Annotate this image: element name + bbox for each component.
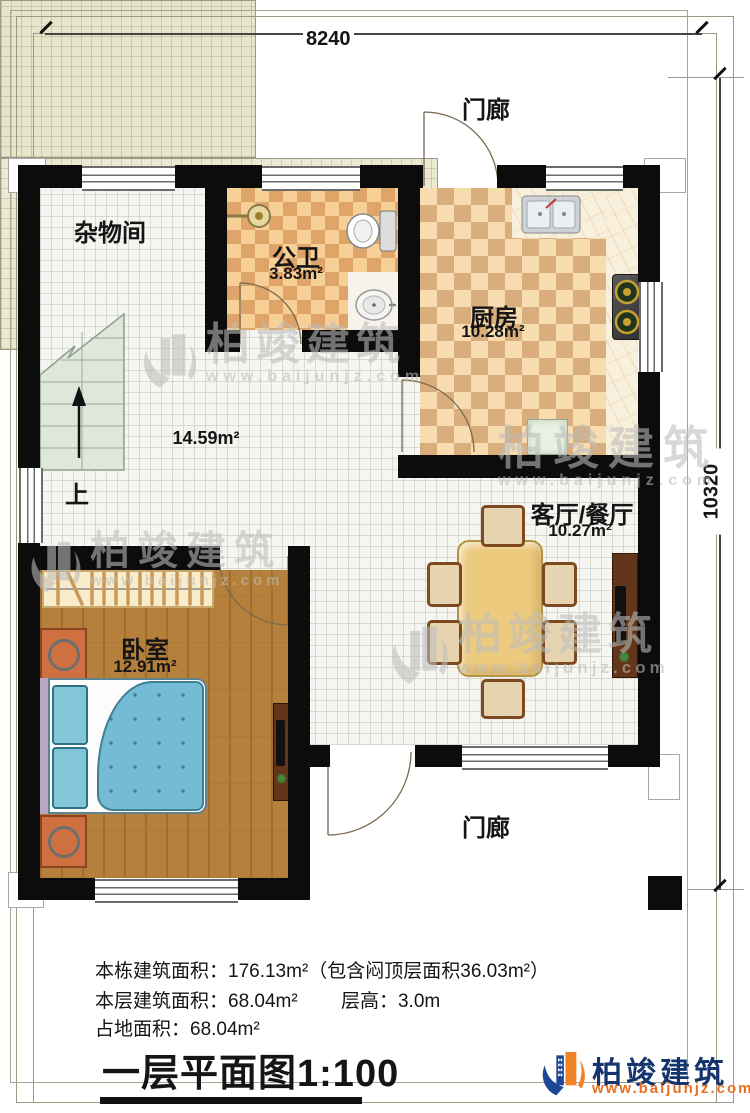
bathroom-sink-counter bbox=[348, 272, 398, 330]
wall bbox=[497, 165, 546, 188]
wall bbox=[302, 330, 398, 352]
pillow bbox=[52, 685, 88, 745]
stairs-direction-label: 上 bbox=[65, 475, 89, 510]
plan-title-text: 一层平面图 bbox=[102, 1053, 297, 1095]
title-underline bbox=[100, 1097, 362, 1104]
window bbox=[639, 282, 663, 372]
area-label-living: 10.27m² bbox=[548, 521, 611, 541]
wall bbox=[310, 745, 330, 767]
bed bbox=[39, 678, 207, 814]
wall bbox=[360, 165, 423, 188]
room-label-porch-bottom: 门廊 bbox=[462, 808, 510, 843]
footer-floor-area: 本层建筑面积：68.04m² 层高：3.0m bbox=[95, 986, 440, 1013]
wall bbox=[398, 455, 660, 478]
room-label-storage: 杂物间 bbox=[74, 213, 146, 248]
wall bbox=[608, 745, 660, 767]
wall bbox=[288, 546, 310, 900]
wall bbox=[415, 745, 462, 767]
plan-scale: 1:100 bbox=[297, 1053, 399, 1095]
plant-icon bbox=[277, 774, 286, 783]
window bbox=[82, 166, 175, 191]
wardrobe bbox=[42, 570, 214, 608]
wall bbox=[398, 188, 420, 377]
dining-chair bbox=[427, 562, 462, 607]
dimension-width-label: 8240 bbox=[303, 28, 354, 51]
dining-chair bbox=[481, 505, 525, 547]
footer-land-area: 占地面积：68.04m² bbox=[95, 1014, 260, 1041]
wall bbox=[175, 165, 262, 188]
brand-logo-icon bbox=[538, 1046, 588, 1098]
footer-floor-height: 层高：3.0m bbox=[341, 991, 440, 1012]
wall bbox=[638, 372, 660, 767]
window bbox=[462, 746, 608, 770]
window bbox=[19, 468, 43, 543]
tv-icon bbox=[615, 586, 626, 644]
tv-icon bbox=[276, 720, 285, 766]
pillow bbox=[52, 747, 88, 809]
dining-table bbox=[457, 540, 543, 677]
dimension-line-top bbox=[45, 33, 702, 35]
footer-total-area: 本栋建筑面积：176.13m²（包含闷顶层面积36.03m²） bbox=[95, 956, 549, 983]
tv-cabinet bbox=[612, 553, 638, 678]
area-label-bedroom: 12.91m² bbox=[113, 657, 176, 677]
footer-floor-area-value: 本层建筑面积：68.04m² bbox=[95, 991, 298, 1012]
wall bbox=[18, 543, 40, 900]
window bbox=[95, 879, 238, 903]
porch-column bbox=[648, 876, 682, 910]
room-label-porch-top: 门廊 bbox=[462, 90, 510, 125]
brand-website: www.baijunjz.com bbox=[592, 1080, 750, 1097]
dining-chair bbox=[481, 679, 525, 719]
bed-headboard bbox=[39, 678, 48, 814]
area-label-hall: 14.59m² bbox=[172, 428, 239, 449]
wall bbox=[40, 546, 220, 570]
wall bbox=[205, 188, 227, 352]
floor-plan-canvas: 8240 10320 bbox=[0, 0, 750, 1113]
dining-chair bbox=[427, 620, 462, 665]
dimension-height-label: 10320 bbox=[701, 449, 724, 535]
wall bbox=[638, 165, 660, 282]
area-label-bathroom: 3.83m² bbox=[269, 264, 323, 284]
nightstand bbox=[40, 815, 87, 868]
window bbox=[262, 166, 360, 191]
window bbox=[546, 166, 623, 191]
wall bbox=[18, 165, 40, 468]
dining-chair bbox=[542, 562, 577, 607]
fridge bbox=[527, 419, 568, 455]
wall bbox=[205, 330, 240, 352]
nightstand bbox=[40, 628, 87, 681]
plant-icon bbox=[619, 652, 629, 662]
plan-title: 一层平面图1:100 bbox=[102, 1042, 399, 1097]
area-label-kitchen: 10.28m² bbox=[461, 322, 524, 342]
wall bbox=[238, 878, 310, 900]
extension-line bbox=[668, 77, 744, 78]
nightstand-knob bbox=[48, 826, 80, 858]
wall bbox=[18, 878, 95, 900]
nightstand-knob bbox=[48, 639, 80, 671]
dining-chair bbox=[542, 620, 577, 665]
